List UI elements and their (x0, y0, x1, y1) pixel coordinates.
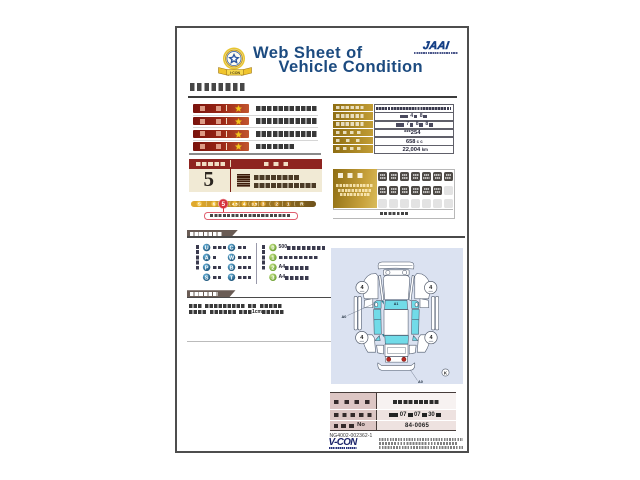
svg-text:3: 3 (271, 275, 274, 281)
svg-text:P: P (205, 265, 209, 271)
svg-text:1: 1 (271, 256, 274, 262)
svg-text:I·CON: I·CON (230, 71, 241, 75)
svg-text:A1: A1 (393, 303, 398, 307)
svg-text:1: 1 (287, 202, 290, 208)
svg-text:4: 4 (243, 202, 246, 208)
svg-text:4.5: 4.5 (232, 202, 238, 207)
svg-text:U: U (205, 246, 209, 252)
svg-text:R: R (300, 202, 304, 208)
svg-text:B: B (229, 265, 233, 271)
svg-text:2: 2 (271, 265, 274, 271)
svg-text:3.5: 3.5 (252, 202, 258, 207)
svg-text:T: T (230, 275, 234, 281)
svg-text:A: A (205, 256, 209, 262)
svg-text:2: 2 (276, 202, 279, 208)
svg-text:0: 0 (271, 246, 274, 252)
svg-text:3: 3 (262, 202, 265, 208)
svg-text:6: 6 (213, 202, 216, 208)
svg-text:C: C (229, 246, 233, 252)
svg-text:A0: A0 (418, 380, 423, 384)
svg-text:A0: A0 (341, 315, 346, 319)
svg-text:W: W (229, 256, 235, 262)
svg-text:S: S (205, 275, 209, 281)
